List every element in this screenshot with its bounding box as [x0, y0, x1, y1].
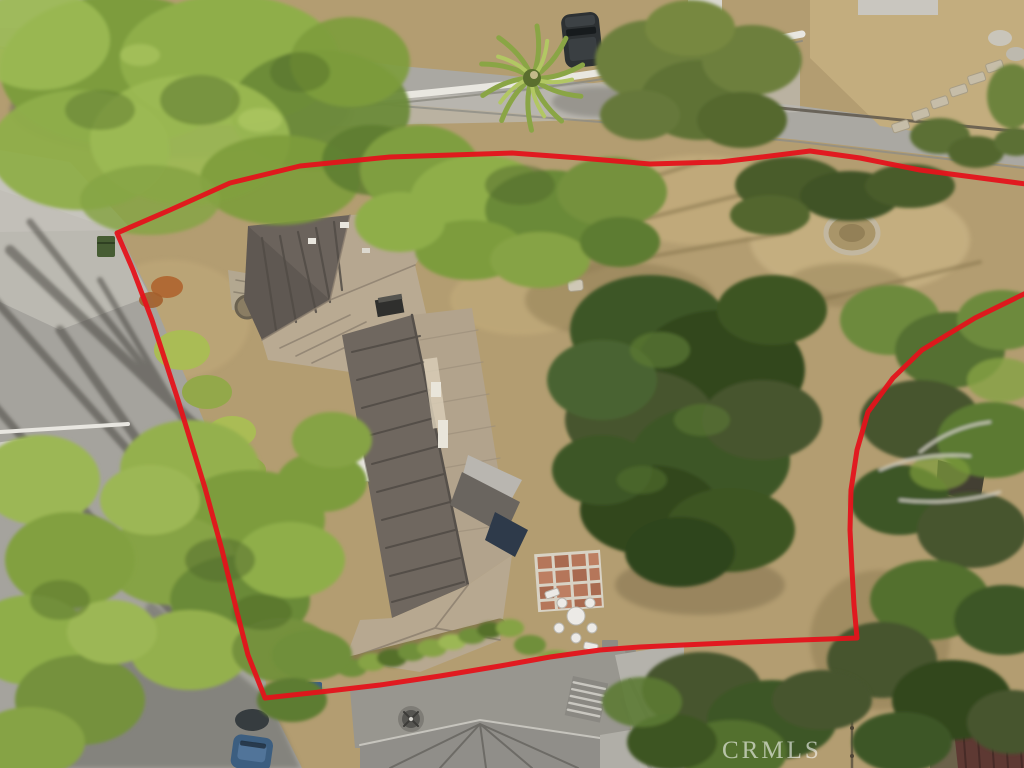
- aerial-property-photo: CRMLS: [0, 0, 1024, 768]
- neighbor-building: [858, 0, 938, 15]
- boulder: [988, 30, 1012, 46]
- patio-chair: [554, 623, 564, 633]
- green-bin: [97, 236, 115, 257]
- patio-chair: [571, 633, 581, 643]
- patio-chair: [557, 598, 567, 608]
- parked-car-bottom-left: [230, 709, 274, 768]
- skylight: [438, 420, 448, 448]
- patio-chair: [587, 623, 597, 633]
- patio-chair: [585, 598, 595, 608]
- watermark: CRMLS: [722, 737, 822, 764]
- patio-table: [567, 607, 585, 625]
- skylight: [431, 382, 441, 397]
